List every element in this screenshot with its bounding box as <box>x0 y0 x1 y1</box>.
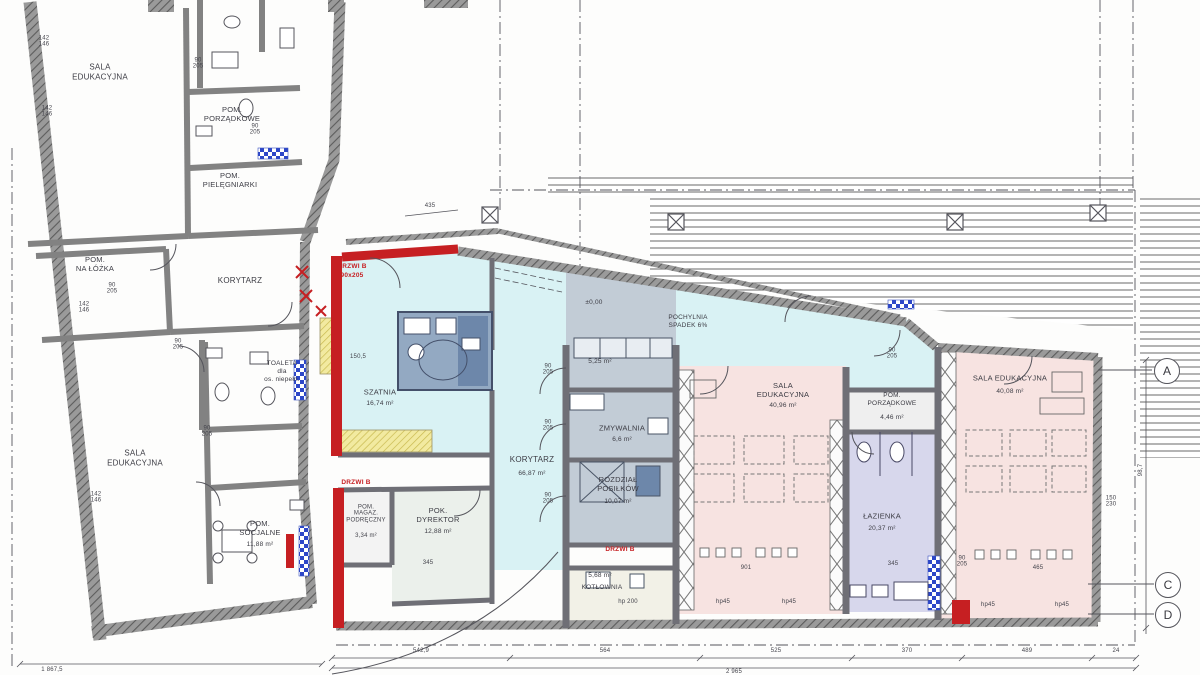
floor-plan: SALA EDUKACYJNA POM. PORZĄDKOWE POM. PIE… <box>0 0 1200 675</box>
floor-plan-drawing <box>0 0 1200 675</box>
room-pom-porzadkowe2-fill <box>846 390 938 432</box>
room-sala-mid-fill <box>676 366 846 614</box>
room-magazyn-fill <box>344 490 392 565</box>
room-kotlownia-fill <box>566 568 676 628</box>
sanitary-block <box>398 312 492 390</box>
room-sala-right-fill <box>938 347 1096 620</box>
room-dyrektor-fill <box>392 490 492 602</box>
